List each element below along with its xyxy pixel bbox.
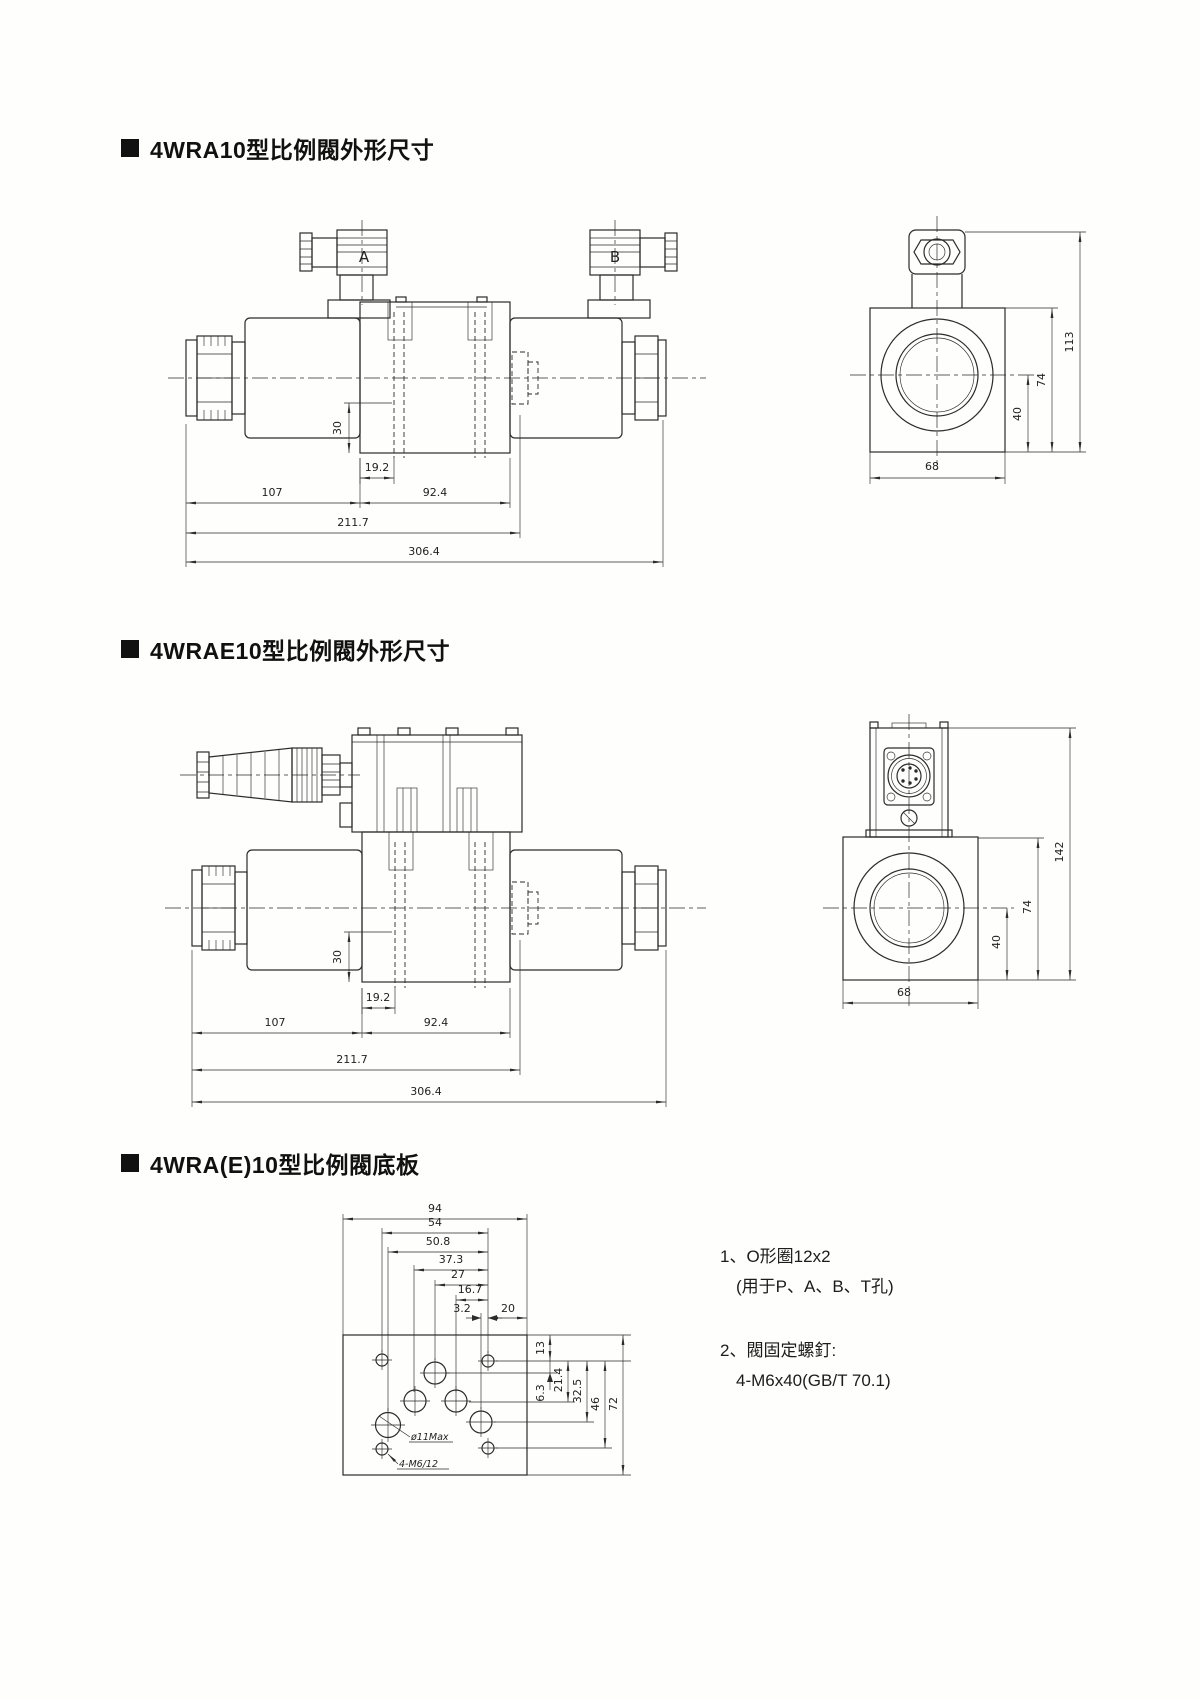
dim-40: 40 [990,935,1003,949]
subplate-drawing: ø11Max 4-M6/12 94 54 50.8 37.3 27 16.7 [0,1200,1200,1490]
solenoid-b-label: B [610,248,620,266]
dim-32-5: 32.5 [571,1379,584,1404]
valve-body [360,302,510,453]
dim-16-7: 16.7 [458,1283,483,1296]
valve1-dimensions: 30 19.2 107 92.4 211.7 306.4 [186,403,663,567]
section-title-text: 4WRA10型比例閥外形尺寸 [150,131,434,165]
dim-68: 68 [897,986,911,999]
dim-113: 113 [1063,332,1076,353]
dim-211-7: 211.7 [337,516,369,529]
dim-92-4: 92.4 [423,486,448,499]
subplate-right-dimensions: 13 6.3 21.4 32.5 46 72 [446,1335,631,1475]
dim-54: 54 [428,1216,442,1229]
note-line: 1、O形圈12x2 [720,1242,894,1272]
dim-19-2: 19.2 [365,461,390,474]
dim-27: 27 [451,1268,465,1281]
dim-107: 107 [265,1016,286,1029]
note-line: 2、閥固定螺釘: [720,1336,891,1366]
section-title-4wrae10: 4WRAE10型比例閥外形尺寸 [121,632,450,666]
dim-68: 68 [925,460,939,473]
dim-142: 142 [1053,842,1066,863]
valve1-drawing: A B 30 [0,210,1200,590]
valve-body-end [843,837,978,980]
note-line: 4-M6x40(GB/T 70.1) [720,1366,891,1396]
dim-6-3: 6.3 [534,1384,547,1402]
section-title-text: 4WRA(E)10型比例閥底板 [150,1146,419,1180]
connector-a: A [300,220,390,318]
port-diameter-label: ø11Max [410,1432,449,1443]
note-o-ring: 1、O形圈12x2 (用于P、A、B、T孔) [720,1242,894,1302]
valve2-front-view: 30 19.2 107 92.4 211.7 306.4 [165,728,706,1107]
section-bullet [121,640,139,658]
dim-3-2: 3.2 [453,1302,471,1315]
dim-30: 30 [331,950,344,964]
dim-107: 107 [262,486,283,499]
dim-13: 13 [534,1341,547,1355]
valve2-side-dimensions: 74 40 142 68 [843,728,1076,1009]
electronics-box [352,728,522,832]
section-title-subplate: 4WRA(E)10型比例閥底板 [121,1146,419,1180]
valve2-side-view: 74 40 142 68 [823,714,1076,1009]
mount-holes-label: 4-M6/12 [399,1459,438,1470]
dim-19-2: 19.2 [366,991,391,1004]
catalog-page: 4WRA10型比例閥外形尺寸 4WRAE10型比例閥外形尺寸 4WRA(E)10… [0,0,1200,1699]
dim-72: 72 [607,1397,620,1411]
valve1-front-view: A B 30 [168,220,706,567]
proportional-connector [197,748,352,827]
dim-37-3: 37.3 [439,1253,464,1266]
dim-20: 20 [501,1302,515,1315]
dim-74: 74 [1035,373,1048,387]
solenoid-coil [247,850,362,970]
subplate-view: ø11Max 4-M6/12 94 54 50.8 37.3 27 16.7 [343,1202,631,1475]
dim-50-8: 50.8 [426,1235,451,1248]
solenoid-a-label: A [359,248,370,266]
dim-40: 40 [1011,407,1024,421]
dim-92-4: 92.4 [424,1016,449,1029]
dim-306-4: 306.4 [408,545,440,558]
section-bullet [121,139,139,157]
valve2-dimensions: 30 19.2 107 92.4 211.7 306.4 [192,932,666,1107]
dim-21-4: 21.4 [552,1368,565,1393]
section-title-text: 4WRAE10型比例閥外形尺寸 [150,632,450,666]
solenoid-coil [510,850,622,970]
dim-306-4: 306.4 [410,1085,442,1098]
dim-74: 74 [1021,900,1034,914]
connector-b: B [588,220,677,318]
valve2-drawing: 30 19.2 107 92.4 211.7 306.4 [0,710,1200,1115]
note-line: (用于P、A、B、T孔) [720,1272,894,1302]
dim-211-7: 211.7 [336,1053,368,1066]
valve1-side-view: 74 40 113 68 [850,216,1086,484]
dim-46: 46 [589,1397,602,1411]
section-title-4wra10: 4WRA10型比例閥外形尺寸 [121,131,434,165]
valve-body [362,832,510,982]
dim-30: 30 [331,421,344,435]
section-bullet [121,1154,139,1172]
dim-94: 94 [428,1202,442,1215]
valve1-side-dimensions: 74 40 113 68 [870,232,1086,484]
port-hole [371,1358,496,1442]
note-screws: 2、閥固定螺釘: 4-M6x40(GB/T 70.1) [720,1336,891,1396]
